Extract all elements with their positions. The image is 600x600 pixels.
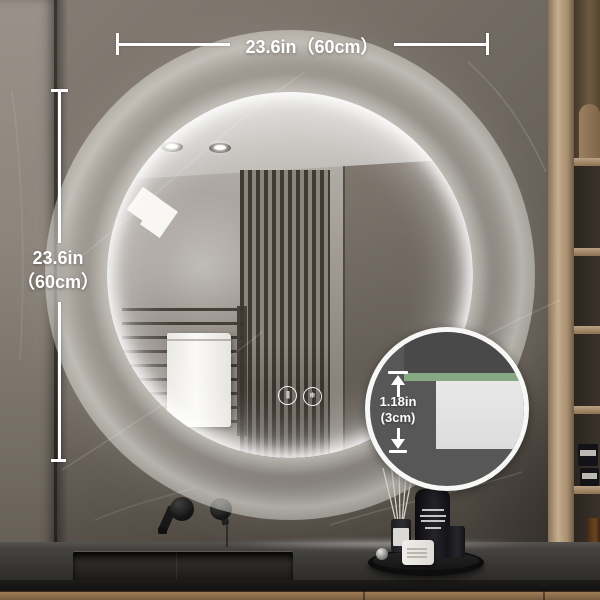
height-label-in: 23.6in: [8, 246, 108, 270]
thickness-value-cm: (3cm): [381, 410, 416, 425]
small-black-jar: [447, 526, 465, 557]
thickness-value-in: 1.18in: [380, 394, 417, 409]
dimension-tick-bottom: [51, 459, 66, 462]
mirror-back-panel: [436, 381, 529, 449]
chrome-ball-decor: [376, 548, 388, 560]
height-label-cm: （60cm）: [8, 270, 108, 294]
dimension-tick-top: [388, 371, 408, 374]
marble-veins: [0, 0, 600, 600]
dimension-line: [118, 43, 230, 46]
white-soap-bar: [402, 540, 434, 565]
arrow-down-icon: [391, 439, 405, 449]
callout-upper-band: [404, 327, 529, 374]
dimension-tick-bottom: [389, 450, 407, 453]
mirror-glass-edge: [404, 373, 529, 381]
thickness-detail-callout: 1.18in (3cm): [365, 327, 529, 491]
dimension-line: [394, 43, 486, 46]
bathroom-product-photo: ||| ❄: [0, 0, 600, 600]
dimension-line: [58, 91, 61, 243]
height-dimension-label: 23.6in （60cm）: [8, 246, 108, 294]
dimension-tick-right: [486, 33, 489, 55]
width-dimension-label: 23.6in（60cm）: [232, 33, 392, 59]
dimension-line: [58, 302, 61, 459]
